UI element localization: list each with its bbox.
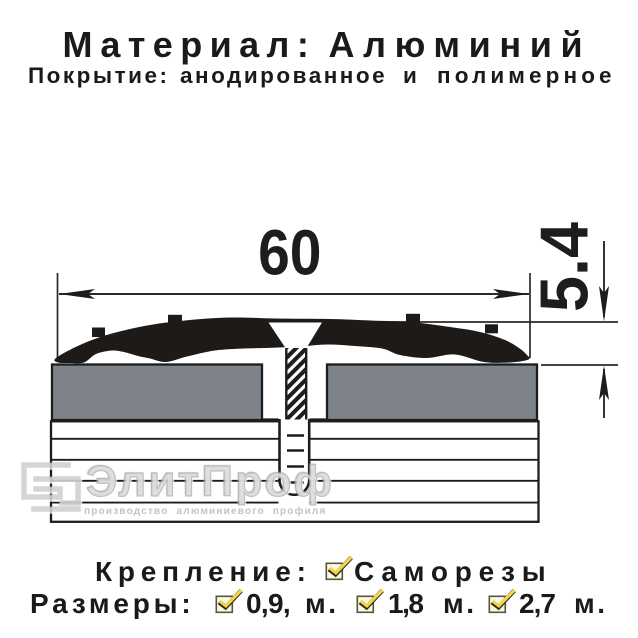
svg-text:5.4: 5.4: [527, 222, 603, 312]
svg-text:60: 60: [258, 216, 321, 288]
